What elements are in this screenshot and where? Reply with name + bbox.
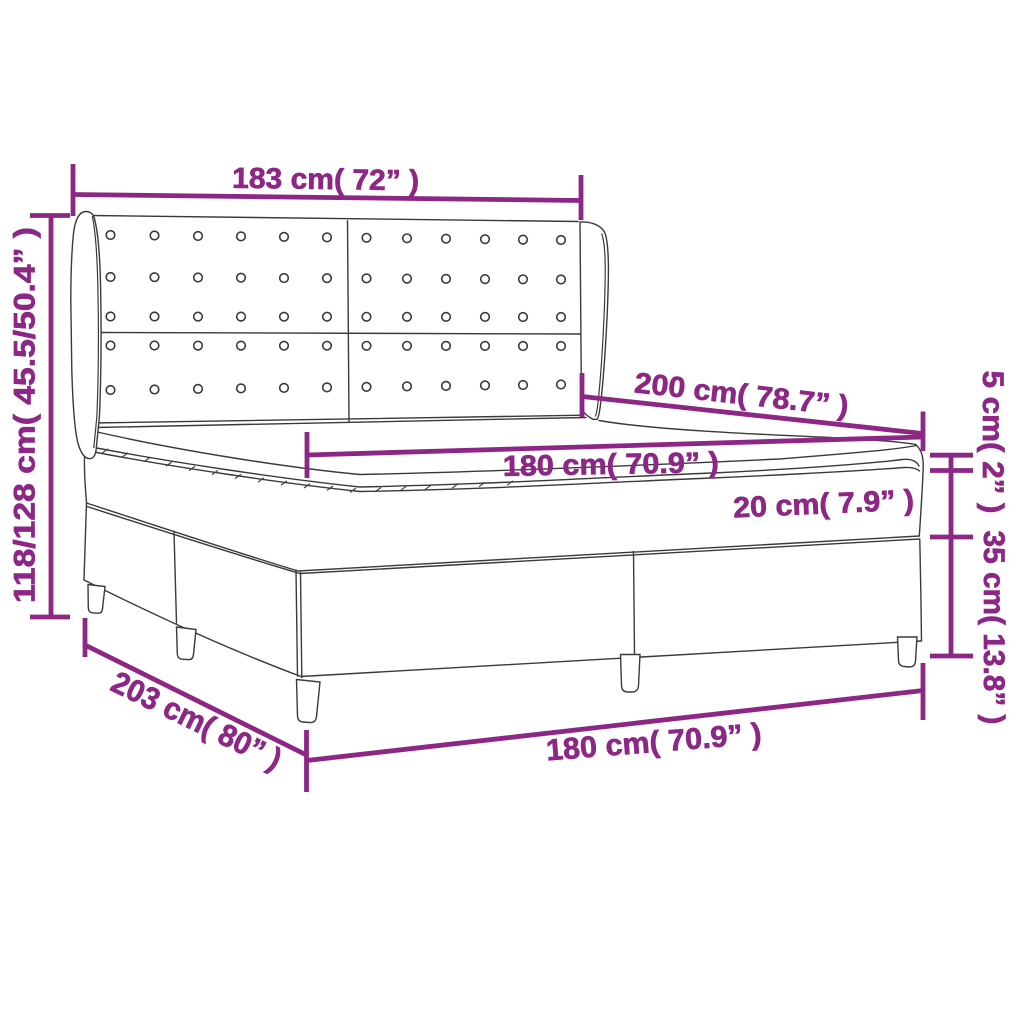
svg-text:183 cm( 72” ): 183 cm( 72” ) [232,163,419,198]
svg-text:118/128 cm( 45.5/50.4” ): 118/128 cm( 45.5/50.4” ) [9,227,42,603]
svg-text:5 cm( 2” ): 5 cm( 2” ) [976,371,1009,514]
svg-text:180 cm( 70.9” ): 180 cm( 70.9” ) [503,447,720,483]
svg-text:35 cm( 13.8” ): 35 cm( 13.8” ) [977,531,1010,725]
